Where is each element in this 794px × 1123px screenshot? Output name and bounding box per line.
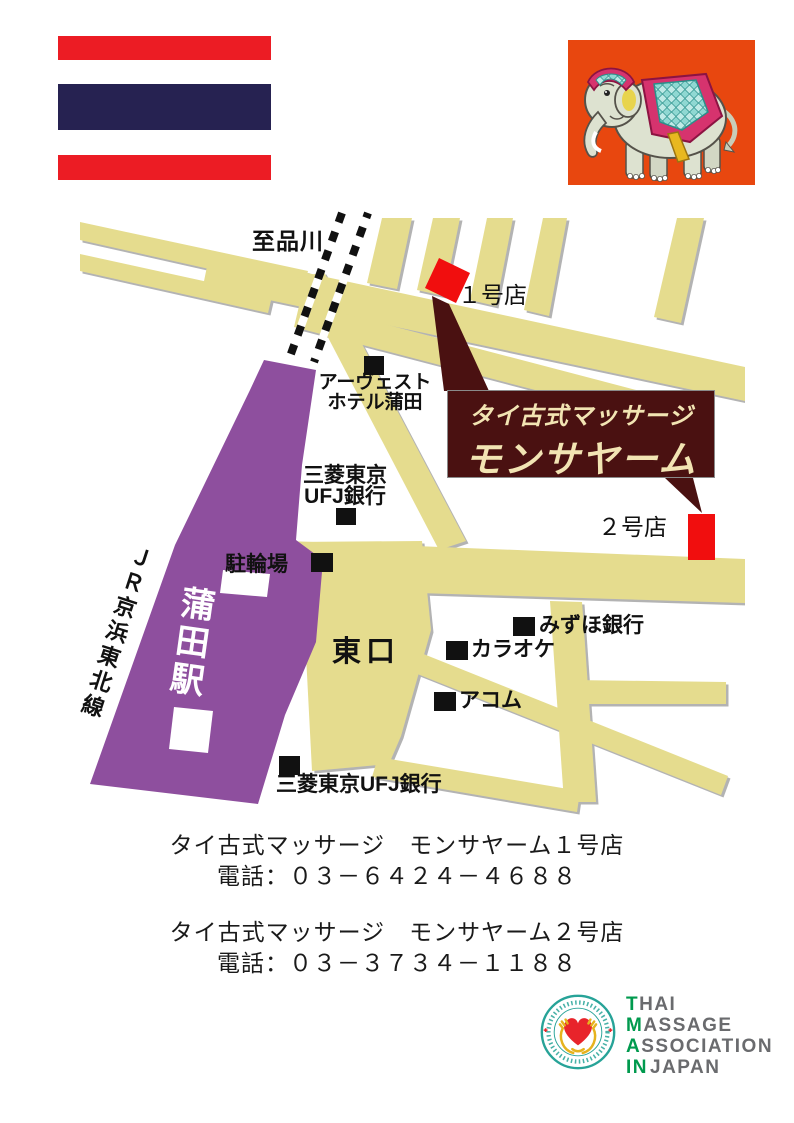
avest-hotel-label: アーヴェスト ホテル蒲田 — [312, 373, 438, 413]
elephant-illustration — [568, 40, 755, 185]
shop1-phone: 電話：０３－６４２４－４６８８ — [0, 861, 794, 892]
to-shinagawa-label: 至品川 — [252, 230, 324, 253]
association-name-line2: MASSAGE — [626, 1015, 773, 1036]
shop-banner: タイ古式マッサージ モンサヤーム — [447, 390, 715, 478]
shop2-phone: 電話：０３－３７３４－１１８８ — [0, 948, 794, 979]
shop2-marker-label: ２号店 — [598, 516, 667, 539]
association-name-line4: INJAPAN — [626, 1057, 773, 1078]
mizuho-bank-label: みずほ銀行 — [539, 615, 644, 636]
association-rest: SSOCIATION — [641, 1036, 773, 1057]
flag-stripe-white — [58, 130, 271, 155]
acom-building-marker — [434, 692, 456, 711]
avest-hotel-line2: ホテル蒲田 — [312, 393, 438, 413]
association-name: THAI MASSAGE ASSOCIATION INJAPAN — [626, 994, 773, 1078]
association-rest: HAI — [639, 994, 676, 1015]
association-logo: THAI MASSAGE ASSOCIATION INJAPAN — [538, 990, 773, 1078]
flag-stripe-red — [58, 155, 271, 180]
flag-stripe-red — [58, 36, 271, 60]
ufj-bank-line2: UFJ銀行 — [290, 486, 400, 507]
karaoke-building-marker — [446, 641, 468, 660]
east-exit-label: 東口 — [332, 638, 400, 667]
thailand-flag — [58, 36, 271, 180]
shop2-name: タイ古式マッサージ モンサヤーム２号店 — [0, 917, 794, 948]
association-name-line3: ASSOCIATION — [626, 1036, 773, 1057]
shop1-info: タイ古式マッサージ モンサヤーム１号店 電話：０３－６４２４－４６８８ — [0, 830, 794, 892]
ufj-bank-south-label: 三菱東京UFJ銀行 — [276, 774, 442, 795]
association-initial: IN — [626, 1057, 648, 1078]
flag-stripe-navy — [58, 84, 271, 130]
association-badge-icon — [538, 990, 618, 1074]
association-initial: T — [626, 994, 639, 1015]
ufj-building-marker — [336, 508, 356, 525]
flag-stripe-white — [58, 60, 271, 84]
shop-contact-info: タイ古式マッサージ モンサヤーム１号店 電話：０３－６４２４－４６８８ タイ古式… — [0, 830, 794, 1004]
map-drawing — [80, 210, 745, 815]
association-initial: A — [626, 1036, 641, 1057]
ufj-bank-line1: 三菱東京 — [290, 465, 400, 486]
shop-banner-title: モンサヤーム — [448, 429, 714, 478]
avest-hotel-line1: アーヴェスト — [312, 373, 438, 393]
ufj-bank-label: 三菱東京 UFJ銀行 — [290, 465, 400, 507]
elephant-icon — [568, 40, 755, 185]
karaoke-label: カラオケ — [471, 639, 555, 660]
shop1-name: タイ古式マッサージ モンサヤーム１号店 — [0, 830, 794, 861]
shop2-info: タイ古式マッサージ モンサヤーム２号店 電話：０３－３７３４－１１８８ — [0, 917, 794, 979]
shop2-marker — [688, 514, 715, 560]
flyer-page: 至品川 １号店 ２号店 アーヴェスト ホテル蒲田 三菱東京 UFJ銀行 駐輪場 … — [0, 0, 794, 1123]
kamata-access-map: 至品川 １号店 ２号店 アーヴェスト ホテル蒲田 三菱東京 UFJ銀行 駐輪場 … — [80, 210, 745, 815]
association-initial: M — [626, 1015, 643, 1036]
shop1-marker-label: １号店 — [458, 284, 527, 307]
mizuho-building-marker — [513, 617, 535, 636]
association-name-line1: THAI — [626, 994, 773, 1015]
bicycle-parking-label: 駐輪場 — [225, 554, 288, 575]
shop-banner-subtitle: タイ古式マッサージ — [448, 396, 714, 431]
acom-label: アコム — [459, 690, 522, 711]
association-rest: ASSAGE — [643, 1015, 732, 1036]
bicycle-parking-marker — [311, 553, 333, 572]
association-rest: JAPAN — [650, 1057, 721, 1078]
pointer-to-shop2 — [665, 478, 702, 513]
